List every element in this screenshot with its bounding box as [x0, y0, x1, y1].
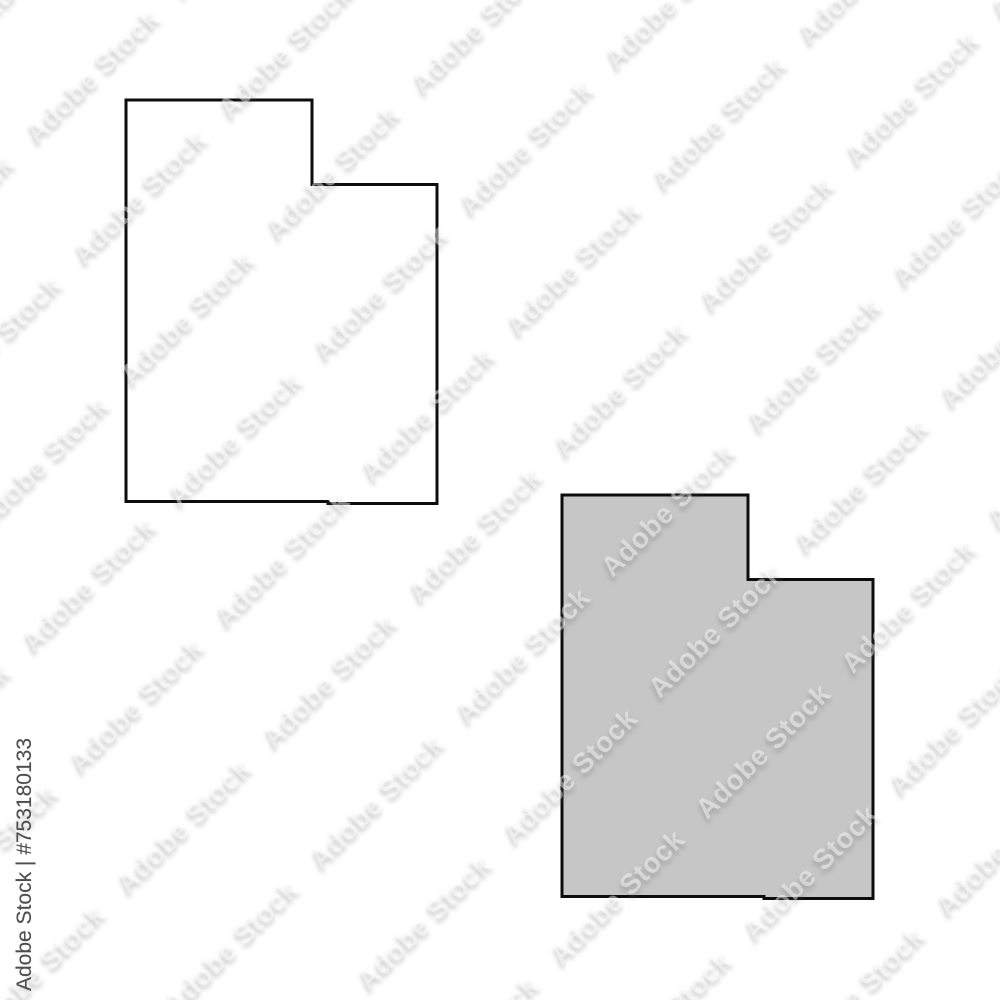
- stock-image-canvas: Adobe StockAdobe StockAdobe StockAdobe S…: [0, 0, 1000, 1000]
- utah-map-icons: [0, 0, 1000, 1000]
- utah-filled-shape: [562, 495, 873, 899]
- stock-id-watermark: Adobe Stock | #753180133: [13, 738, 37, 991]
- utah-outline-shape: [126, 100, 437, 504]
